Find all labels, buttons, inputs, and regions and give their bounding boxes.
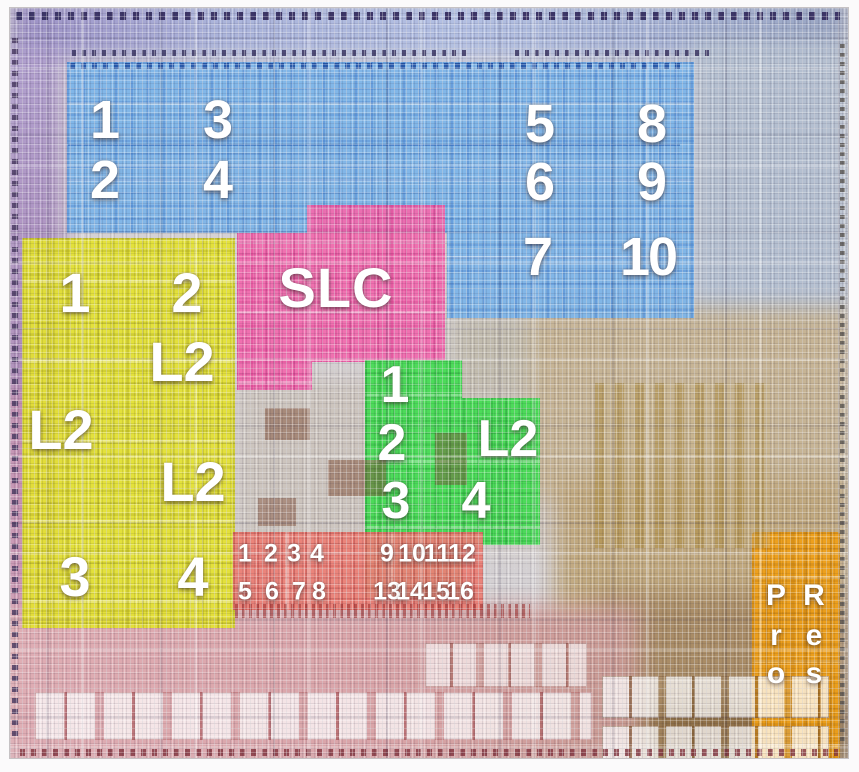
media-engine-letter: s [806,659,823,689]
gpu-core-label: 6 [525,155,555,209]
e-core-label: 3 [382,475,411,527]
gpu-core-label: 5 [525,97,555,151]
die-tint-right-mid [530,308,848,498]
npu-core-label: 9 [380,542,394,567]
e-core-label: 4 [462,475,491,527]
npu-core-label: 5 [238,580,252,605]
gpu-core-label: 4 [203,153,233,207]
media-engine-letter: P [766,581,786,611]
chip-die: 1 2 3 4 5 6 7 8 9 10 SLC 1 2 3 4 L2 L2 L… [10,8,848,758]
gpu-core-label: 9 [637,155,667,209]
p-core-label: 1 [59,265,90,321]
p-core-label: 3 [59,549,90,605]
npu-core-label: 6 [265,580,279,605]
npu-core-label: 11 [424,542,450,567]
die-tint-top-right [690,38,848,328]
p-core-l2-label: L2 [149,334,214,390]
npu-core-label: 14 [396,580,424,605]
slc-label: SLC [279,260,394,316]
media-engine-region [752,532,840,758]
e-core-label: 1 [381,359,410,411]
npu-core-label: 2 [264,542,278,567]
media-engine-letter: o [767,659,785,689]
gpu-core-label: 10 [620,230,676,284]
media-engine-letter: r [770,621,782,651]
npu-core-label: 1 [238,542,252,567]
npu-core-label: 12 [448,542,476,567]
p-core-label: 4 [177,549,208,605]
die-tint-bottom [10,606,640,758]
die-shot-figure: 1 2 3 4 5 6 7 8 9 10 SLC 1 2 3 4 L2 L2 L… [0,0,859,772]
media-engine-letter: e [806,621,823,651]
gpu-core-label: 1 [90,93,120,147]
e-core-label: 2 [378,417,407,469]
npu-core-label: 4 [310,542,324,567]
gpu-core-label: 7 [523,230,553,284]
npu-core-label: 10 [398,542,426,567]
npu-core-label: 7 [292,580,306,605]
p-core-l2-label: L2 [160,454,225,510]
gpu-core-label: 3 [203,93,233,147]
npu-core-label: 3 [287,542,301,567]
p-core-l2-label: L2 [28,402,93,458]
media-engine-letter: R [803,581,825,611]
e-core-l2-label: L2 [478,413,539,465]
npu-core-label: 16 [446,580,474,605]
gpu-core-label: 8 [637,97,667,151]
p-core-label: 2 [171,265,202,321]
gpu-core-label: 2 [90,153,120,207]
npu-core-label: 8 [312,580,326,605]
